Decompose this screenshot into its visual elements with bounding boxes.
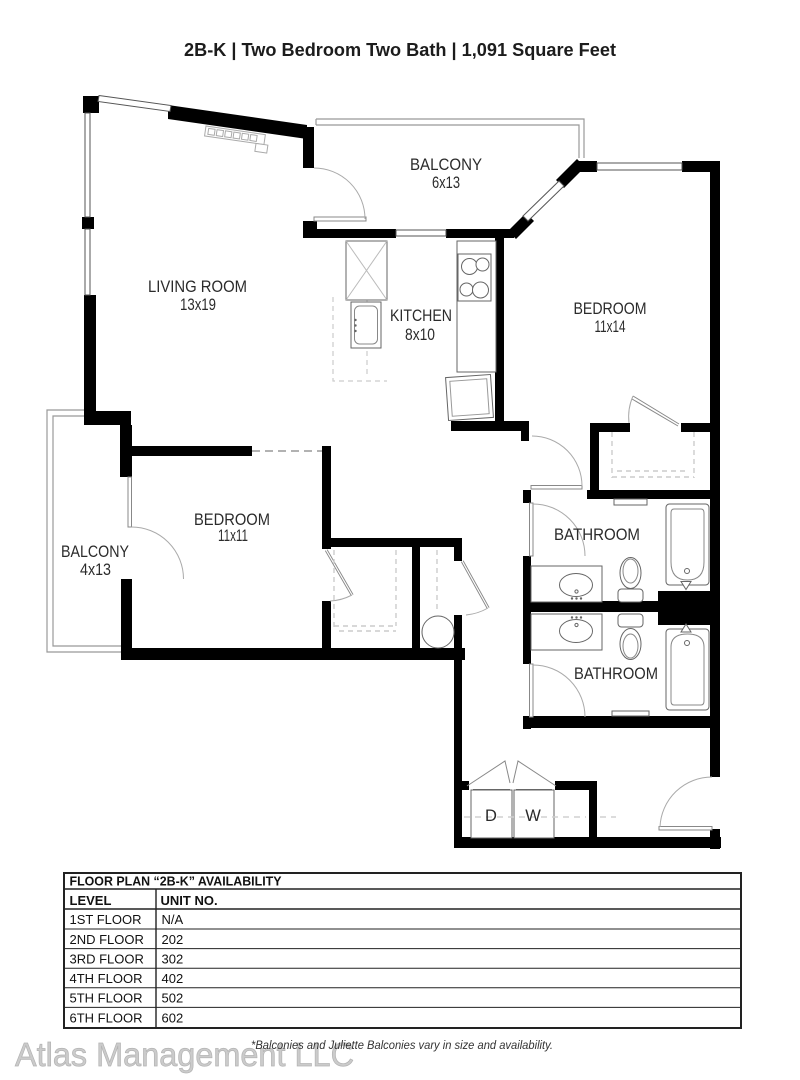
svg-text:N/A: N/A: [162, 912, 184, 927]
svg-text:KITCHEN: KITCHEN: [390, 307, 452, 325]
svg-text:*Balconies and Juliette Balcon: *Balconies and Juliette Balconies vary i…: [251, 1040, 553, 1052]
svg-text:202: 202: [162, 932, 184, 947]
svg-text:UNIT NO.: UNIT NO.: [161, 893, 218, 908]
svg-text:602: 602: [162, 1010, 184, 1025]
svg-text:502: 502: [162, 991, 184, 1006]
svg-text:BEDROOM: BEDROOM: [574, 300, 647, 318]
svg-text:8x10: 8x10: [405, 326, 435, 344]
svg-text:4x13: 4x13: [80, 561, 111, 579]
svg-text:5TH FLOOR: 5TH FLOOR: [70, 991, 143, 1006]
svg-text:W: W: [525, 807, 541, 825]
svg-text:3RD FLOOR: 3RD FLOOR: [70, 951, 144, 966]
svg-text:1ST FLOOR: 1ST FLOOR: [70, 912, 142, 927]
svg-text:FLOOR PLAN “2B-K” AVAILABILITY: FLOOR PLAN “2B-K” AVAILABILITY: [70, 874, 282, 889]
svg-text:11x14: 11x14: [595, 318, 626, 336]
svg-text:D: D: [485, 807, 497, 825]
svg-text:2B-K | Two Bedroom Two Bath |: 2B-K | Two Bedroom Two Bath | 1,091 Squa…: [184, 40, 616, 60]
svg-text:302: 302: [162, 951, 184, 966]
svg-text:BATHROOM: BATHROOM: [554, 526, 640, 544]
svg-text:BALCONY: BALCONY: [61, 543, 129, 561]
svg-text:2ND FLOOR: 2ND FLOOR: [70, 932, 144, 947]
svg-text:13x19: 13x19: [180, 296, 216, 314]
svg-text:LEVEL: LEVEL: [70, 893, 112, 908]
svg-text:4TH FLOOR: 4TH FLOOR: [70, 971, 143, 986]
svg-text:6TH FLOOR: 6TH FLOOR: [70, 1010, 143, 1025]
svg-text:BALCONY: BALCONY: [410, 156, 482, 174]
svg-text:LIVING ROOM: LIVING ROOM: [148, 278, 247, 296]
svg-text:BATHROOM: BATHROOM: [574, 665, 658, 683]
svg-text:11x11: 11x11: [218, 527, 248, 545]
svg-text:6x13: 6x13: [432, 174, 460, 192]
svg-text:402: 402: [162, 971, 184, 986]
